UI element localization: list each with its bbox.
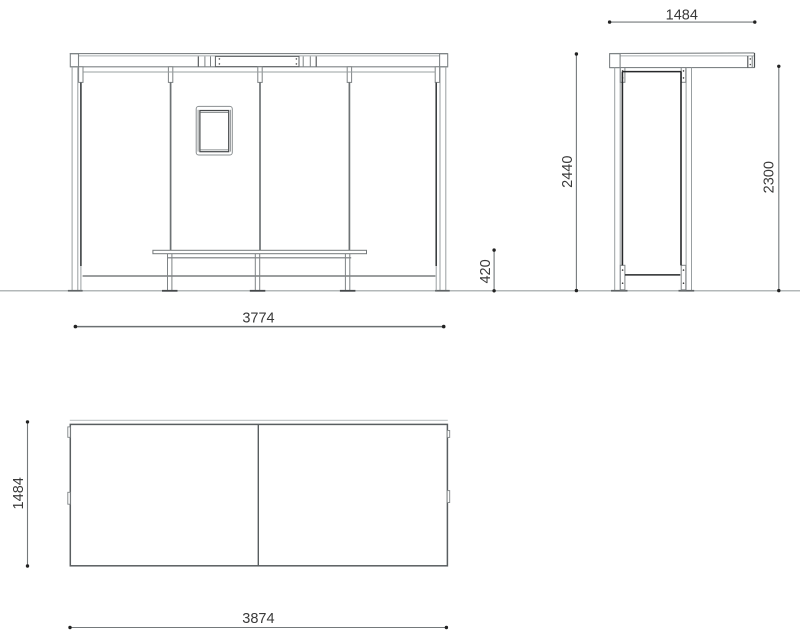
svg-text:2300: 2300: [761, 161, 777, 193]
svg-text:1484: 1484: [666, 7, 698, 23]
svg-text:420: 420: [478, 259, 494, 283]
svg-text:3774: 3774: [242, 311, 274, 327]
svg-text:1484: 1484: [11, 477, 27, 509]
svg-text:2440: 2440: [560, 156, 576, 188]
svg-text:3874: 3874: [242, 611, 274, 627]
